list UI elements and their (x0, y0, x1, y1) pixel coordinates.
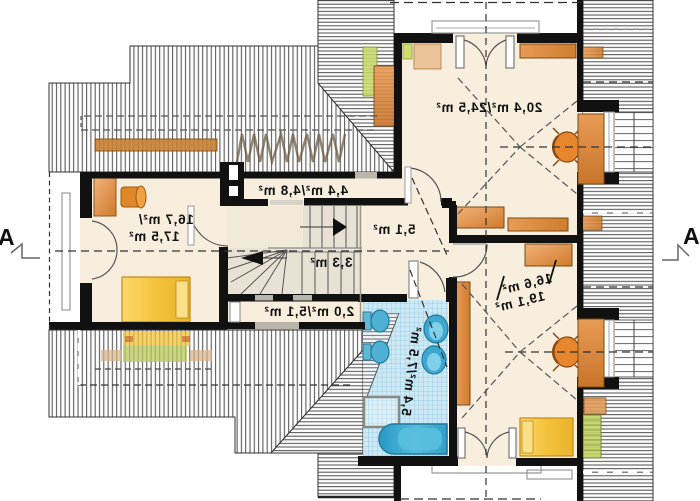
svg-text:4,4 m²/4,8 m²: 4,4 m²/4,8 m² (258, 183, 348, 198)
svg-text:17,5 m²: 17,5 m² (128, 229, 179, 244)
svg-text:3,3 m²: 3,3 m² (310, 255, 353, 270)
svg-text:A: A (683, 223, 700, 249)
svg-text:5,1 m²: 5,1 m² (373, 222, 416, 237)
svg-text:16,7 m²/: 16,7 m²/ (138, 212, 193, 227)
svg-text:20,4 m²/24,5 m²: 20,4 m²/24,5 m² (436, 100, 543, 115)
svg-text:A: A (0, 224, 15, 250)
svg-text:2,0 m²/5,1 m²: 2,0 m²/5,1 m² (264, 304, 354, 319)
